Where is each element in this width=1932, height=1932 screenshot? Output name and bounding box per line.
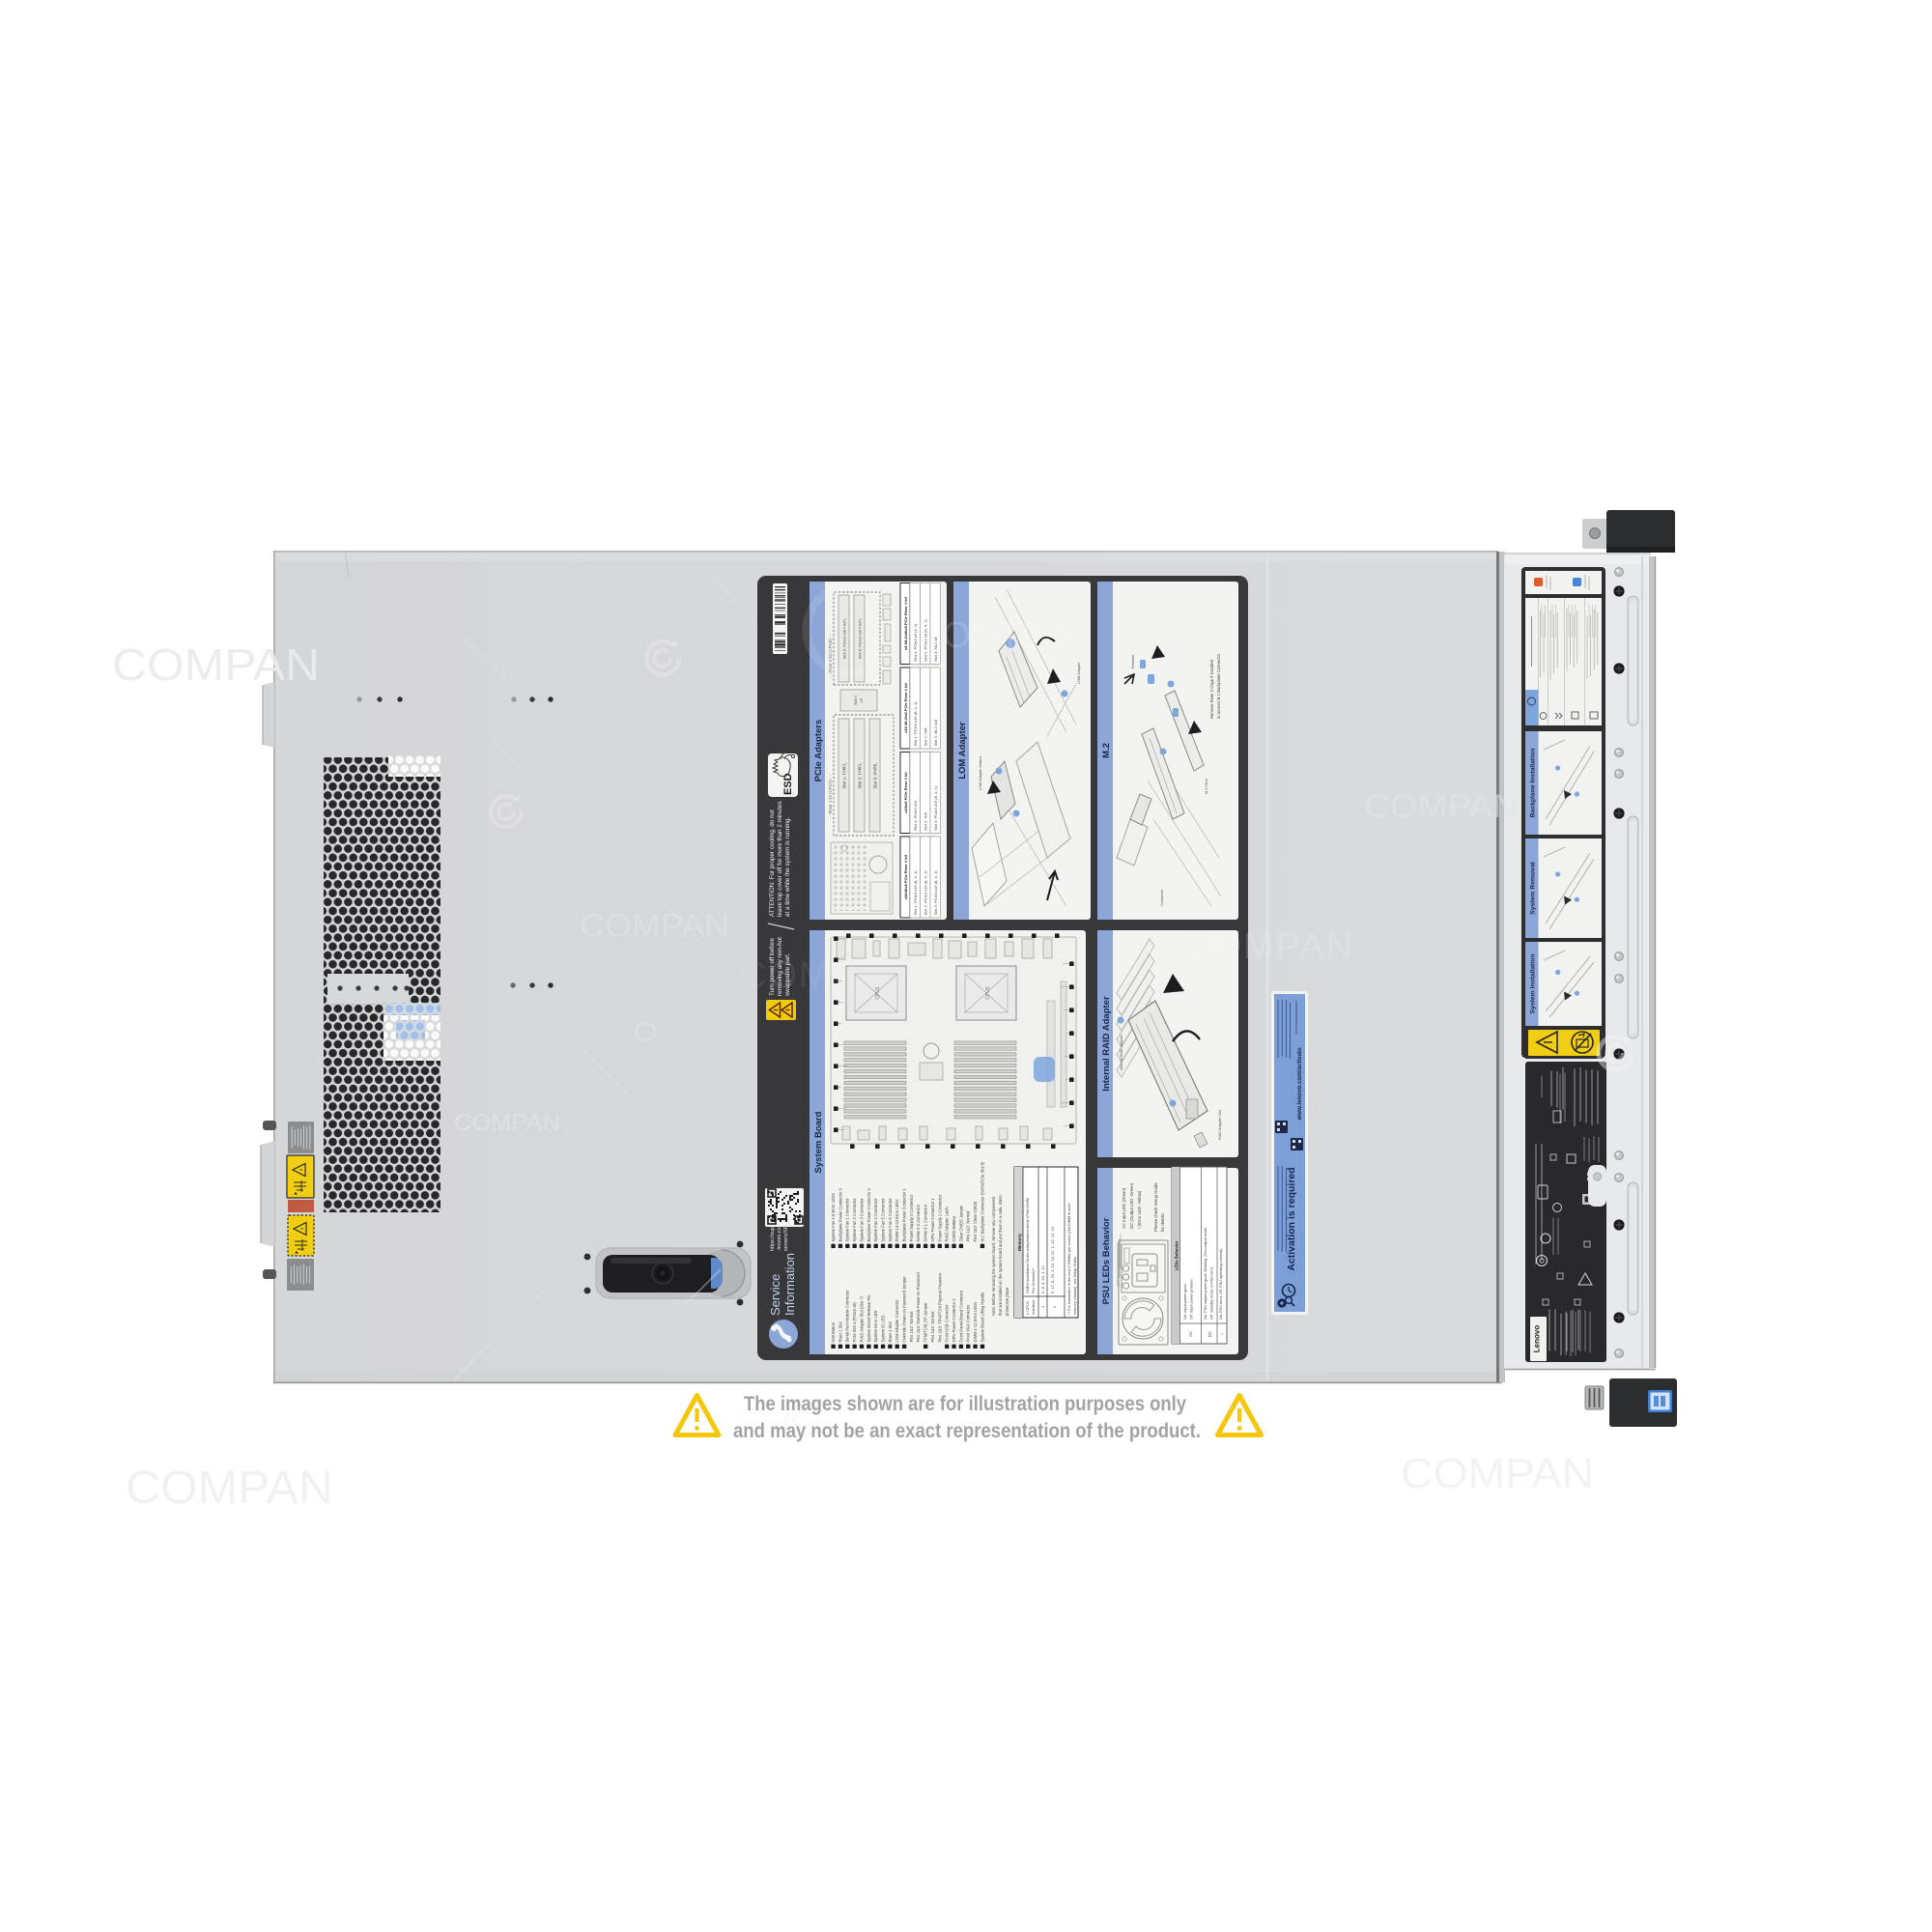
svg-text:COMPAN: COMPAN [914, 615, 1084, 656]
svg-text:Backplane Power Connector 2: Backplane Power Connector 2 [867, 1187, 871, 1241]
svg-text:at a time while the system is: at a time while the system is running. [784, 817, 791, 917]
svg-text:Slot 5: PCIe3 x16 FH/FL: Slot 5: PCIe3 x16 FH/FL [842, 617, 847, 659]
svg-text:that are installed on the syst: that are installed on the system board a… [998, 1193, 1003, 1316]
svg-text:LOM Adapter Connector: LOM Adapter Connector [895, 1299, 899, 1343]
svg-text:for details.: for details. [1160, 1212, 1165, 1232]
svg-text:COMPAN: COMPAN [454, 1110, 560, 1136]
svg-text:The images shown are for illus: The images shown are for illustration pu… [744, 1391, 1186, 1415]
svg-text:COMPAN: COMPAN [126, 1463, 333, 1514]
svg-text:to access M.2 Backplane Connec: to access M.2 Backplane Connector. [1216, 653, 1221, 719]
svg-text:System Error LED: System Error LED [873, 1310, 878, 1342]
svg-text:DIMM 13-24 Error LEDs: DIMM 13-24 Error LEDs [895, 1200, 899, 1242]
svg-text:Activation is required: Activation is required [1286, 1167, 1297, 1270]
svg-text:DIMM Installation Order-Indepe: DIMM Installation Order-Independent Mode… [1025, 1198, 1030, 1293]
svg-text:ATTENTION: For proper cooling: ATTENTION: For proper cooling, do not [769, 810, 776, 917]
svg-text:RAID Adapter Latch: RAID Adapter Latch [945, 1207, 950, 1242]
svg-text:System Fan 1-6 Error LEDs: System Fan 1-6 Error LEDs [831, 1193, 836, 1241]
svg-text:Pins 2&3: TPM/TCM Physical Pre: Pins 2&3: TPM/TCM Physical Presence [937, 1272, 942, 1343]
svg-text:CMOS Battery: CMOS Battery [952, 1215, 956, 1241]
svg-text:NVMe 0-1 Connector: NVMe 0-1 Connector [923, 1204, 928, 1241]
svg-text:TPM/TCM_PP Jumper: TPM/TCM_PP Jumper [923, 1302, 928, 1343]
svg-text:Front VGA Connector: Front VGA Connector [966, 1304, 971, 1343]
svg-text:Internal RAID Adapter: Internal RAID Adapter [1120, 1034, 1123, 1070]
svg-text:GPU Power Connector 1: GPU Power Connector 1 [930, 1198, 935, 1242]
svg-text:x16/x8 PCIe Riser 1 kit: x16/x8 PCIe Riser 1 kit [903, 772, 908, 813]
svg-text:LOM Adapter: LOM Adapter [957, 722, 968, 780]
svg-text:AC Input LED (Green): AC Input LED (Green) [1122, 1187, 1126, 1229]
svg-text:Internal RAID Adapter: Internal RAID Adapter [1101, 996, 1112, 1092]
svg-text:Remove Riser 2 Cage if install: Remove Riser 2 Cage if installed [1209, 659, 1214, 719]
svg-text:Backplane Power Connector 1: Backplane Power Connector 1 [902, 1187, 907, 1241]
svg-text:PCIe Slot 4 (PCIe3 x8): PCIe Slot 4 (PCIe3 x8) [852, 1301, 857, 1342]
svg-text:Pins 1&2: Normal: Pins 1&2: Normal [930, 1312, 935, 1343]
svg-text:DC (Output LED -Green): DC (Output LED -Green) [1129, 1182, 1134, 1229]
svg-text:COMPAN: COMPAN [1401, 1450, 1594, 1497]
svg-text:M.2 Drive: M.2 Drive [1205, 779, 1208, 794]
svg-text:System Board: System Board [813, 1111, 824, 1173]
svg-text:DC: DC [1207, 1331, 1212, 1337]
svg-text:CPU2: CPU2 [985, 986, 991, 1000]
svg-text:DIMM 1-12 Error LEDs: DIMM 1-12 Error LEDs [973, 1302, 978, 1343]
svg-text:M.2 Backplane Connector (SATA/: M.2 Backplane Connector (SATA/PCIe Slot … [980, 1161, 984, 1242]
svg-text:RAID Adapter Slot: RAID Adapter Slot [1218, 1109, 1222, 1140]
svg-text:LOM Adapter Airduct: LOM Adapter Airduct [979, 755, 982, 790]
svg-text:Power Supply 1 Connector: Power Supply 1 Connector [937, 1194, 942, 1241]
svg-text:COMPAN: COMPAN [1184, 926, 1354, 967]
svg-text:System Fan 4 Connector: System Fan 4 Connector [873, 1198, 878, 1242]
svg-text:Power Supply 2 Connector: Power Supply 2 Connector [909, 1194, 914, 1241]
svg-text:LOM Adapter: LOM Adapter [1077, 662, 1081, 684]
svg-text:Pins 1&2: Normal: Pins 1&2: Normal [909, 1312, 914, 1343]
svg-text:Off: Input power problem.: Off: Input power problem. [1190, 1278, 1194, 1320]
svg-text:x16 ML2/x8 PCIe Riser 1 kit: x16 ML2/x8 PCIe Riser 1 kit [903, 683, 908, 733]
svg-text:Note: Before removing the syst: Note: Before removing the system board, … [991, 1197, 996, 1316]
svg-text:Override Power-on Password Jum: Override Power-on Password Jumper [902, 1276, 907, 1343]
svg-text:COMPAN: COMPAN [112, 639, 320, 690]
svg-text:Pins 2&3: Override Power-on Pa: Pins 2&3: Override Power-on Password [916, 1272, 921, 1343]
svg-text:System Board Lifting Handle: System Board Lifting Handle [980, 1292, 984, 1343]
svg-text:Slot 3: FH/HL: Slot 3: FH/HL [873, 762, 878, 789]
svg-text:System Fan 1 Connector: System Fan 1 Connector [845, 1198, 850, 1242]
svg-text:PCIe Adapters: PCIe Adapters [813, 720, 824, 782]
svg-text:Slot 4: Slot 4 [854, 696, 858, 705]
svg-text:On: PSU error. Off: PSU oper: On: PSU error. Off: PSU operating correc… [1219, 1248, 1223, 1320]
svg-text:Pins 1&2: Normal: Pins 1&2: Normal [966, 1211, 971, 1242]
svg-text:! (Error LED -Yellow): ! (Error LED -Yellow) [1137, 1190, 1142, 1229]
svg-text:COMPAN: COMPAN [740, 955, 910, 996]
svg-text:and may not be an exact repres: and may not be an exact representation o… [733, 1418, 1201, 1442]
svg-text:Slot 6: PCIe3 x16 FH/FL: Slot 6: PCIe3 x16 FH/FL [858, 617, 863, 659]
svg-text:Slot 2: N/A: Slot 2: N/A [923, 727, 928, 746]
svg-text:COMPAN: COMPAN [580, 908, 729, 943]
svg-text:RAID Adapter Slot (Slot 7): RAID Adapter Slot (Slot 7) [859, 1295, 864, 1342]
svg-text:System Installation: System Installation [1530, 954, 1537, 1014]
svg-text:On: Input power good.: On: Input power good. [1183, 1283, 1187, 1320]
svg-text:Riser 2 Slot: Riser 2 Slot [838, 1321, 842, 1342]
svg-text:5, 17, 8, 20, 3, 15, 10, 22, 1: 5, 17, 8, 20, 3, 15, 10, 22, 1, 13, 12, … [1050, 1226, 1055, 1293]
svg-text:- - Riser 1 kit (CPU1) - -: - - Riser 1 kit (CPU1) - - [828, 774, 833, 819]
svg-text:NVMe 2-3 Connector: NVMe 2-3 Connector [916, 1204, 921, 1241]
svg-text:Slot 3: PCIe3 x16 (8, 4, 1): Slot 3: PCIe3 x16 (8, 4, 1) [933, 785, 938, 831]
svg-text:GPU Power Connector 2: GPU Power Connector 2 [952, 1298, 956, 1343]
svg-text:Front-Panel-Board Connector: Front-Panel-Board Connector [958, 1290, 963, 1342]
svg-text:System Fan 2 Connector: System Fan 2 Connector [852, 1198, 857, 1242]
svg-text:Backplane Installation: Backplane Installation [1530, 749, 1537, 818]
svg-text:Slot 1: FH/FL: Slot 1: FH/FL [842, 762, 847, 789]
svg-text:System Fan 3 Connector: System Fan 3 Connector [859, 1198, 864, 1242]
svg-text:Pins 2&3: Clear CMOS: Pins 2&3: Clear CMOS [973, 1201, 978, 1241]
svg-text:Off: Standby mode or PSU error: Off: Standby mode or PSU error. [1210, 1266, 1214, 1320]
svg-text:x8/x8/x8 PCIe Riser 1 kit: x8/x8/x8 PCIe Riser 1 kit [903, 854, 908, 898]
svg-text:5, 8, 3, 10, 1, 12: 5, 8, 3, 10, 1, 12 [1040, 1264, 1045, 1293]
svg-text:Clear CMOS Jumper: Clear CMOS Jumper [958, 1205, 963, 1242]
svg-text:Slot 2: PCIe3 x16 (8, 4, 1): Slot 2: PCIe3 x16 (8, 4, 1) [923, 870, 928, 916]
svg-text:Lenovo: Lenovo [1533, 1325, 1542, 1353]
svg-text:Backplane Power Connector 3: Backplane Power Connector 3 [838, 1187, 842, 1241]
svg-text:Serial-Port-Module Connector: Serial-Port-Module Connector [845, 1290, 850, 1343]
svg-text:NMI Button: NMI Button [831, 1321, 836, 1342]
svg-text:COMPAN: COMPAN [1364, 788, 1519, 825]
svg-text:LEDs Behavior: LEDs Behavior [1175, 1240, 1179, 1270]
svg-text:# CPUs: # CPUs [1025, 1301, 1030, 1315]
svg-text:Front USB Connector: Front USB Connector [945, 1304, 950, 1343]
svg-text:x8 ML2/x8/x8 PCIe Riser 1 kit: x8 ML2/x8/x8 PCIe Riser 1 kit [903, 596, 908, 650]
svg-text:Slot 3: PCIe3 x16 (8, 4, 1): Slot 3: PCIe3 x16 (8, 4, 1) [933, 870, 938, 916]
svg-text:!: ! [1220, 1333, 1225, 1334]
svg-text:protective place.: protective place. [1005, 1287, 1009, 1317]
svg-text:Slot 1: PCIe3 x16 (8, 4, 1): Slot 1: PCIe3 x16 (8, 4, 1) [913, 701, 918, 747]
svg-text:Slot 1: PCIe3 x16: Slot 1: PCIe3 x16 [913, 800, 918, 831]
svg-text:System Removal: System Removal [1530, 862, 1537, 915]
svg-text:On: PSU output power good. Bl: On: PSU output power good. Blinking: Zer… [1204, 1227, 1207, 1320]
svg-text:memory channel), see Setup Gui: memory channel), see Setup Guide. [1073, 1256, 1077, 1315]
svg-text:leave top cover off for more t: leave top cover off for more than 2 minu… [777, 801, 783, 917]
svg-text:** For installation of the nex: ** For installation of the next 6 DIMMs … [1067, 1204, 1071, 1315]
svg-text:Memory: Memory [1017, 1234, 1022, 1251]
svg-text:Retainer: Retainer [1131, 654, 1135, 668]
svg-text:System Board Release Pin: System Board Release Pin [867, 1294, 871, 1343]
svg-text:www.lenovo.com/activate: www.lenovo.com/activate [1296, 1047, 1303, 1122]
svg-text:AC: AC [1188, 1331, 1193, 1337]
svg-text:Slot 1: PCIe3 x16 (8, 4, 1): Slot 1: PCIe3 x16 (8, 4, 1) [913, 870, 918, 916]
svg-text:Slot 2: FH/FL: Slot 2: FH/FL [858, 762, 863, 789]
svg-text:Slot 3: ML2 x16: Slot 3: ML2 x16 [933, 719, 938, 747]
svg-text:Connector: Connector [1160, 889, 1164, 906]
svg-text:Riser 1 Slot: Riser 1 Slot [888, 1321, 893, 1342]
svg-text:Per Channel)**: Per Channel)** [1031, 1267, 1036, 1293]
svg-text:PSU LEDs Behavior: PSU LEDs Behavior [1101, 1217, 1112, 1304]
svg-text:System Fan 5 Connector: System Fan 5 Connector [880, 1198, 885, 1242]
svg-text:Installed: Installed [1031, 1300, 1036, 1315]
svg-text:System Fan 6 Connector: System Fan 6 Connector [888, 1198, 893, 1242]
svg-text:Please check Setup Guide: Please check Setup Guide [1153, 1182, 1158, 1232]
svg-text:System ID LED: System ID LED [880, 1315, 885, 1342]
svg-text:Information: Information [782, 1253, 797, 1316]
svg-text:M.2: M.2 [1101, 743, 1112, 758]
svg-text:Service: Service [768, 1274, 782, 1316]
svg-text:LP: LP [860, 697, 864, 702]
svg-text:Slot 2: N/A: Slot 2: N/A [923, 812, 928, 831]
